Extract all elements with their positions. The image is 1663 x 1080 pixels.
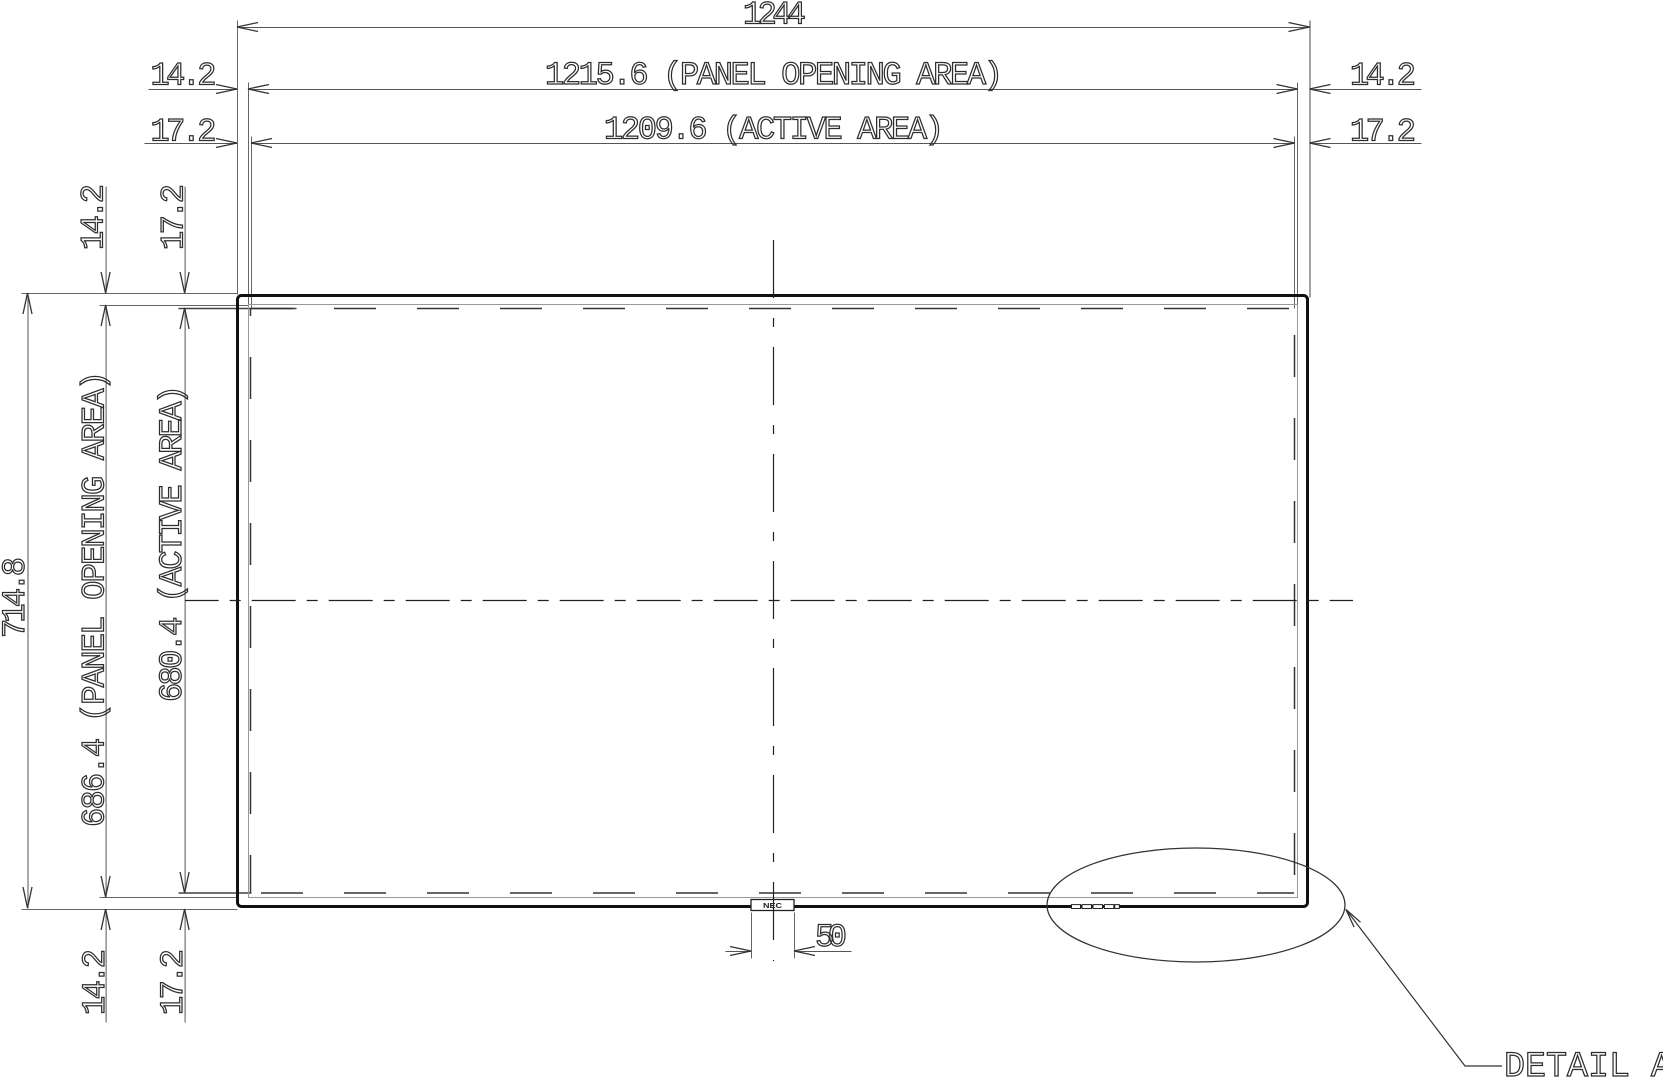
svg-text:680.4 (ACTIVE AREA): 680.4 (ACTIVE AREA) (154, 385, 191, 702)
svg-text:14.2: 14.2 (76, 184, 113, 250)
svg-text:17.2: 17.2 (156, 184, 193, 250)
svg-text:17.2: 17.2 (151, 114, 217, 151)
svg-text:14.2: 14.2 (77, 949, 114, 1015)
svg-text:1244: 1244 (743, 0, 806, 34)
svg-text:50: 50 (815, 919, 847, 956)
svg-text:14.2: 14.2 (1350, 58, 1416, 95)
svg-text:1209.6 (ACTIVE AREA): 1209.6 (ACTIVE AREA) (604, 112, 944, 149)
svg-text:NEC: NEC (763, 901, 783, 910)
svg-text:686.4 (PANEL OPENING AREA): 686.4 (PANEL OPENING AREA) (77, 371, 114, 827)
svg-text:714.8: 714.8 (0, 557, 34, 638)
svg-text:17.2: 17.2 (1350, 114, 1416, 151)
svg-text:1215.6 (PANEL OPENING AREA): 1215.6 (PANEL OPENING AREA) (545, 57, 1003, 94)
svg-text:DETAIL A: DETAIL A (1504, 1047, 1663, 1080)
svg-text:17.2: 17.2 (155, 949, 192, 1015)
svg-text:14.2: 14.2 (151, 58, 217, 95)
